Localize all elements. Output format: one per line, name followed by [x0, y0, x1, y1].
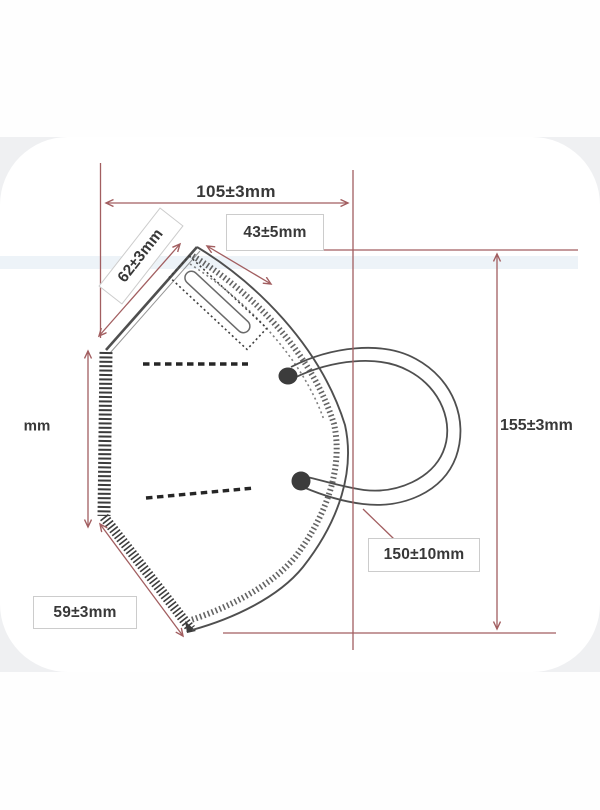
ear-loop-weld-top — [279, 368, 298, 385]
ear-loop — [279, 348, 461, 505]
mask-line-drawing — [0, 0, 600, 810]
dim-top-width-label: 105±3mm — [196, 182, 275, 202]
ear-loop-weld-bottom — [292, 472, 311, 491]
dim-ear-loop-label: 150±10mm — [368, 538, 480, 572]
leader-ear-loop — [363, 509, 394, 539]
faint-artifact-band — [0, 256, 578, 269]
dim-nose-strip-label: 43±5mm — [226, 214, 324, 251]
dim-left-edge-label-partial: mm — [24, 418, 51, 435]
dim-overall-height-label: 155±3mm — [500, 416, 573, 436]
dim-lower-left-edge-label: 59±3mm — [33, 596, 137, 629]
mask-technical-diagram: 105±3mm 43±5mm 62±3mm mm 155±3mm 150±10m… — [0, 0, 600, 810]
fold-lines — [143, 364, 254, 498]
mask-outline — [104, 247, 348, 633]
